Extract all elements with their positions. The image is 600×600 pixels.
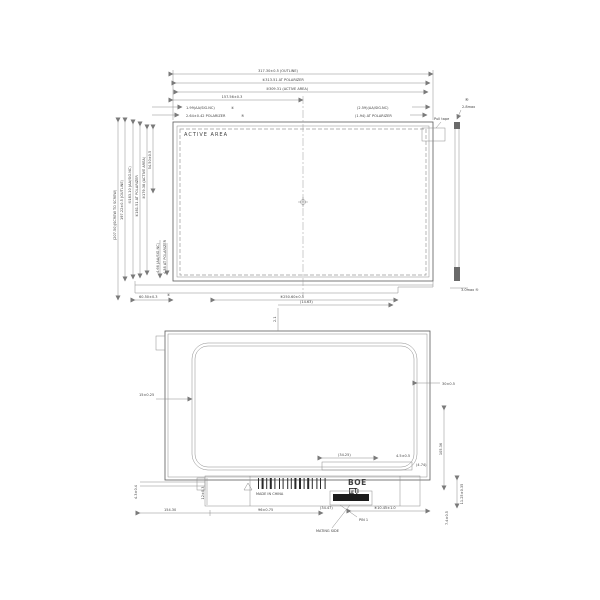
drawing-sheet: { "front_view": { "active_area": "ACTIVE…: [0, 0, 600, 600]
dim-left-aa: 1.99(AA/SIG.NC): [186, 106, 215, 110]
front-bottom-dimensions: 60.50±0.3 ④ ⑥250.60±0.5: [135, 293, 398, 300]
dim-bottom-aa: 4.66 (AA/SIG.NC): [156, 242, 160, 272]
dim-inner1: 4.5±0.5: [396, 454, 410, 458]
datum-a: ④: [167, 293, 170, 297]
dim-active-height: ③179.38 (ACTIVE AREA): [142, 156, 146, 199]
pin1-label: PIN 1: [359, 518, 368, 522]
dim-screw-height: (207.50)(SCREW TO SCREW): [113, 189, 117, 240]
front-panel-outline: [135, 122, 433, 293]
warning-triangle-icon: [244, 483, 252, 490]
dim-rear-right-gap: 30±0.5: [442, 382, 455, 386]
dim-outline-height: 197.22±0.5 (OUTLINE): [120, 179, 124, 219]
dim-rear-right-height: 105.36: [439, 443, 443, 455]
rear-pcb: MADE IN CHINA BOE PIN 1 MATING SIDE: [140, 476, 420, 533]
dim-rear-top: (14.63): [300, 300, 313, 304]
dim-left-pol-ref: ⑤: [241, 114, 244, 118]
dim-active-width: ③309.31 (ACTIVE AREA): [266, 87, 309, 91]
dim-right-pol: (1.94) AT POLARIZER: [355, 114, 392, 118]
rear-view: (34.25) 4.5±0.5 (4.74) MADE IN CHINA BOE: [134, 300, 464, 533]
made-in-label: MADE IN CHINA: [256, 492, 284, 496]
dim-conn-pos: ⑥10.45±1.0: [374, 506, 396, 510]
dim-inner2: (4.74): [416, 463, 427, 467]
dim-half-width: 157.56±0.3: [222, 95, 243, 99]
dim-conn-height: 7.4±0.5: [445, 511, 449, 525]
dim-bottom-center: ⑥250.60±0.5: [280, 295, 304, 299]
side-profile-view: ④ 2.8max 3.0max ⑤: [450, 97, 478, 292]
dim-polarizer-width: ④313.51 AT POLARIZER: [262, 78, 304, 82]
dim-left-pol: 2.64±0.42 POLARIZER: [186, 114, 226, 118]
dim-rear-top-tick: 2.1: [273, 316, 277, 322]
dim-fpc: (34.25): [338, 453, 351, 457]
panel-outline-drawing: ACTIVE AREA Pull tape 317.30±0.5 (OUTLIN…: [0, 0, 600, 600]
dim-polarizer-height: ④181.51 AT POLARIZER: [135, 175, 139, 217]
dim-conn-edge: 11.25±0.35: [460, 484, 464, 505]
dim-rail: 4.3±0.4: [134, 484, 138, 499]
side-top-ref: ④: [465, 97, 469, 102]
dim-rear-bot1: 154.30: [164, 508, 176, 512]
dim-outline-width: 317.30±0.5 (OUTLINE): [258, 69, 298, 73]
front-left-dimensions: (207.50)(SCREW TO SCREW) 197.22±0.5 (OUT…: [113, 122, 167, 300]
pull-tape-label: Pull tape: [434, 117, 449, 121]
front-top-dimensions: 317.30±0.5 (OUTLINE) ④313.51 AT POLARIZE…: [152, 69, 433, 120]
boe-logo: BOE: [348, 478, 367, 487]
side-bottom-dim: 3.0max ⑤: [461, 288, 478, 292]
dim-top-offset: 54.50±0.5: [148, 151, 152, 170]
dim-conn-width: (34.47): [320, 506, 333, 510]
dim-rear-left: 15±0.25: [139, 393, 154, 397]
dim-rear-bot2: 96±0.75: [258, 508, 273, 512]
side-top-dim: 2.8max: [462, 105, 475, 109]
dim-bottom-pol: 4.38 AT POLARIZER: [163, 239, 167, 274]
active-area-label: ACTIVE AREA: [184, 132, 228, 138]
rear-panel-outline: [156, 331, 430, 480]
front-view: ACTIVE AREA Pull tape 317.30±0.5 (OUTLIN…: [113, 69, 478, 300]
rear-notch: [156, 336, 165, 350]
dim-pcb-height: 12±0.3: [201, 487, 205, 500]
dim-signal-height: ⑤183.10 (AA/SIG.NC): [128, 166, 132, 204]
mating-side-label: MATING SIDE: [316, 529, 339, 533]
dim-right-aa: (2.59)(AA/SIG.NC): [357, 106, 389, 110]
dim-left-aa-ref: ④: [231, 106, 234, 110]
dim-bottom-left: 60.50±0.3: [139, 295, 158, 299]
connector: PIN 1 MATING SIDE: [316, 491, 372, 533]
